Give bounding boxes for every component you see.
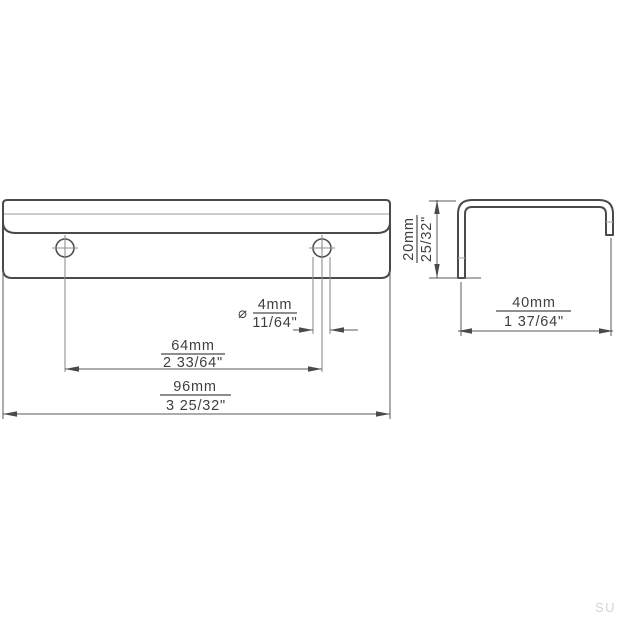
arrowhead [299, 327, 313, 332]
arrowhead [308, 366, 322, 371]
arrowhead [376, 411, 390, 416]
dim-hole-diameter-inch: 11/64" [252, 315, 297, 331]
dim-height-inch: 25/32" [419, 216, 435, 262]
hole-crosshair [52, 235, 78, 261]
arrowhead [330, 327, 344, 332]
dimension-depth: 40mm 1 37/64" [458, 238, 613, 336]
arrowhead [434, 200, 439, 214]
dim-height-mm: 20mm [401, 217, 417, 261]
dim-hole-spacing-mm: 64mm [171, 338, 215, 354]
arrowhead [3, 411, 17, 416]
diameter-symbol-icon: ⌀ [238, 305, 248, 322]
front-view-outline [3, 200, 390, 278]
dim-hole-diameter-mm: 4mm [258, 297, 293, 313]
watermark: SU [595, 600, 616, 615]
dim-length-inch: 3 25/32" [166, 398, 226, 414]
side-profile-outline [458, 200, 613, 278]
arrowhead [65, 366, 79, 371]
side-view [458, 200, 613, 278]
dimension-height: 20mm 25/32" [401, 200, 481, 278]
dim-depth-mm: 40mm [512, 295, 556, 311]
dimension-hole-diameter: ⌀ 4mm 11/64" [238, 257, 358, 334]
mounting-hole-left [52, 235, 78, 261]
drawing-canvas: ⌀ 4mm 11/64" 64mm 2 33/64" 96mm 3 25/32"… [0, 0, 620, 620]
technical-drawing: ⌀ 4mm 11/64" 64mm 2 33/64" 96mm 3 25/32"… [0, 0, 620, 620]
dim-depth-inch: 1 37/64" [504, 314, 564, 330]
dim-hole-spacing-inch: 2 33/64" [163, 355, 223, 371]
arrowhead [434, 264, 439, 278]
dim-length-mm: 96mm [173, 379, 217, 395]
arrowhead [458, 328, 472, 333]
front-view [3, 200, 390, 278]
front-view-lip-line [3, 222, 390, 233]
